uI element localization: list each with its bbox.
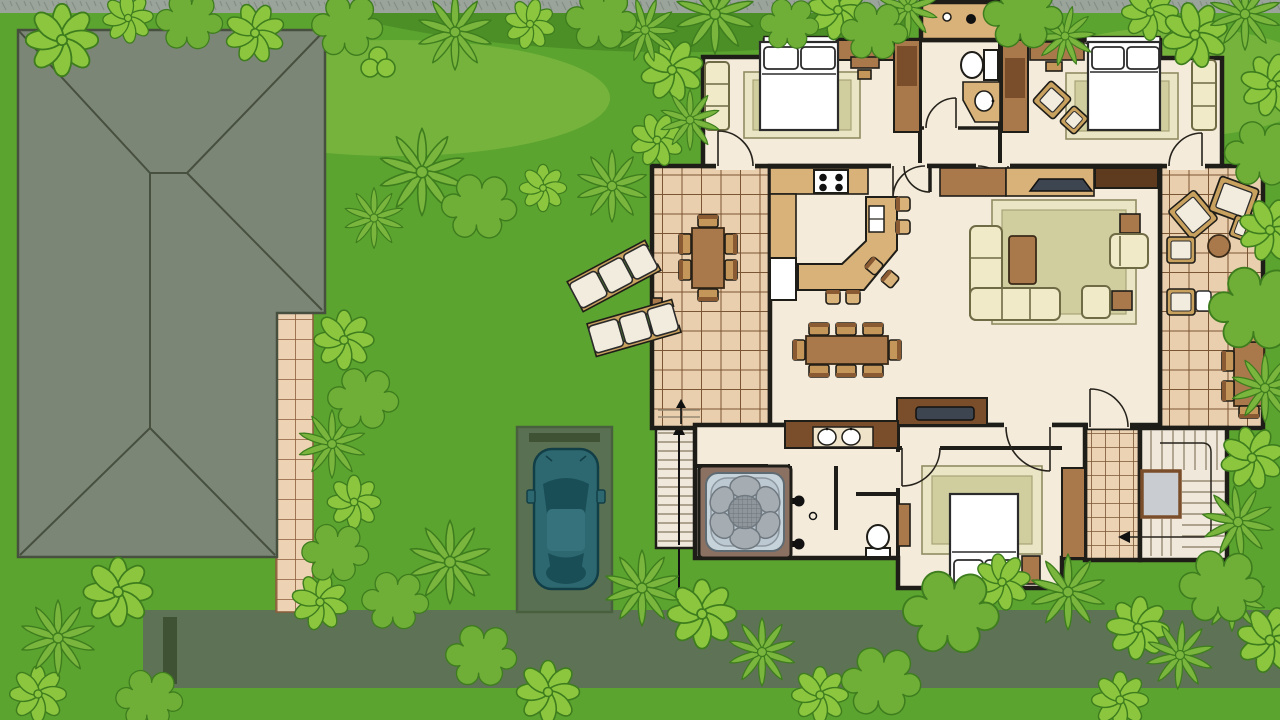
outdoor-table (692, 228, 724, 288)
chair (809, 365, 829, 377)
chair (836, 323, 856, 335)
chair (679, 260, 691, 280)
chair (889, 340, 901, 360)
sink (842, 429, 860, 445)
house-floor-plan (652, 2, 1264, 592)
bar-stool (896, 220, 910, 234)
side-table (1112, 291, 1132, 310)
windshield (543, 478, 589, 514)
desk (851, 57, 879, 68)
sink (975, 91, 993, 111)
sink (818, 429, 836, 445)
chair (725, 234, 737, 254)
desk-chair (858, 70, 871, 79)
counter (770, 194, 796, 260)
coffee-table (1009, 236, 1036, 284)
fridge (770, 258, 796, 300)
chair (863, 365, 883, 377)
bar-stool (896, 197, 910, 211)
chair (698, 289, 718, 301)
double-bed (760, 42, 838, 130)
double-bed (1088, 42, 1160, 130)
pillow (1092, 47, 1124, 69)
tv-console (940, 168, 1006, 196)
bar-stool (846, 290, 860, 304)
island-sink (869, 206, 884, 232)
side-table (1120, 214, 1140, 233)
bar-stool (826, 290, 840, 304)
mirror (597, 490, 605, 503)
dining-table (806, 336, 888, 364)
chair (679, 234, 691, 254)
pillow (1127, 47, 1159, 69)
wardrobe (1062, 468, 1085, 558)
tv (1030, 179, 1092, 191)
tray (916, 407, 974, 420)
armchair (1110, 234, 1148, 268)
stone-path (276, 313, 313, 612)
ottoman (1082, 286, 1110, 318)
toilet (866, 525, 890, 557)
car-roof (547, 509, 585, 551)
cooktop (814, 170, 848, 193)
media-cabinet (1095, 168, 1158, 188)
landing (1142, 471, 1180, 517)
cushioned-chair (1167, 237, 1195, 263)
hot-tub (699, 466, 791, 558)
dresser (898, 504, 910, 546)
pillow (801, 47, 835, 69)
rear-shade (546, 562, 586, 584)
settee (705, 62, 729, 130)
fixture (966, 14, 976, 24)
settee (1192, 60, 1216, 130)
mirror (527, 490, 535, 503)
toilet (961, 50, 998, 80)
lower-deck (1085, 428, 1140, 560)
chair (725, 260, 737, 280)
chair (1222, 351, 1234, 371)
chair (836, 365, 856, 377)
cushioned-chair (1167, 289, 1195, 315)
chair (793, 340, 805, 360)
pillow (764, 47, 798, 69)
site-plan-illustration: Aerial site plan: house floor plan with … (0, 0, 1280, 720)
chair (863, 323, 883, 335)
parked-car (527, 449, 605, 589)
chair (698, 215, 718, 227)
fixture (943, 13, 951, 21)
chair (809, 323, 829, 335)
driveway-stop-bar (529, 433, 600, 442)
round-table (1208, 235, 1230, 257)
